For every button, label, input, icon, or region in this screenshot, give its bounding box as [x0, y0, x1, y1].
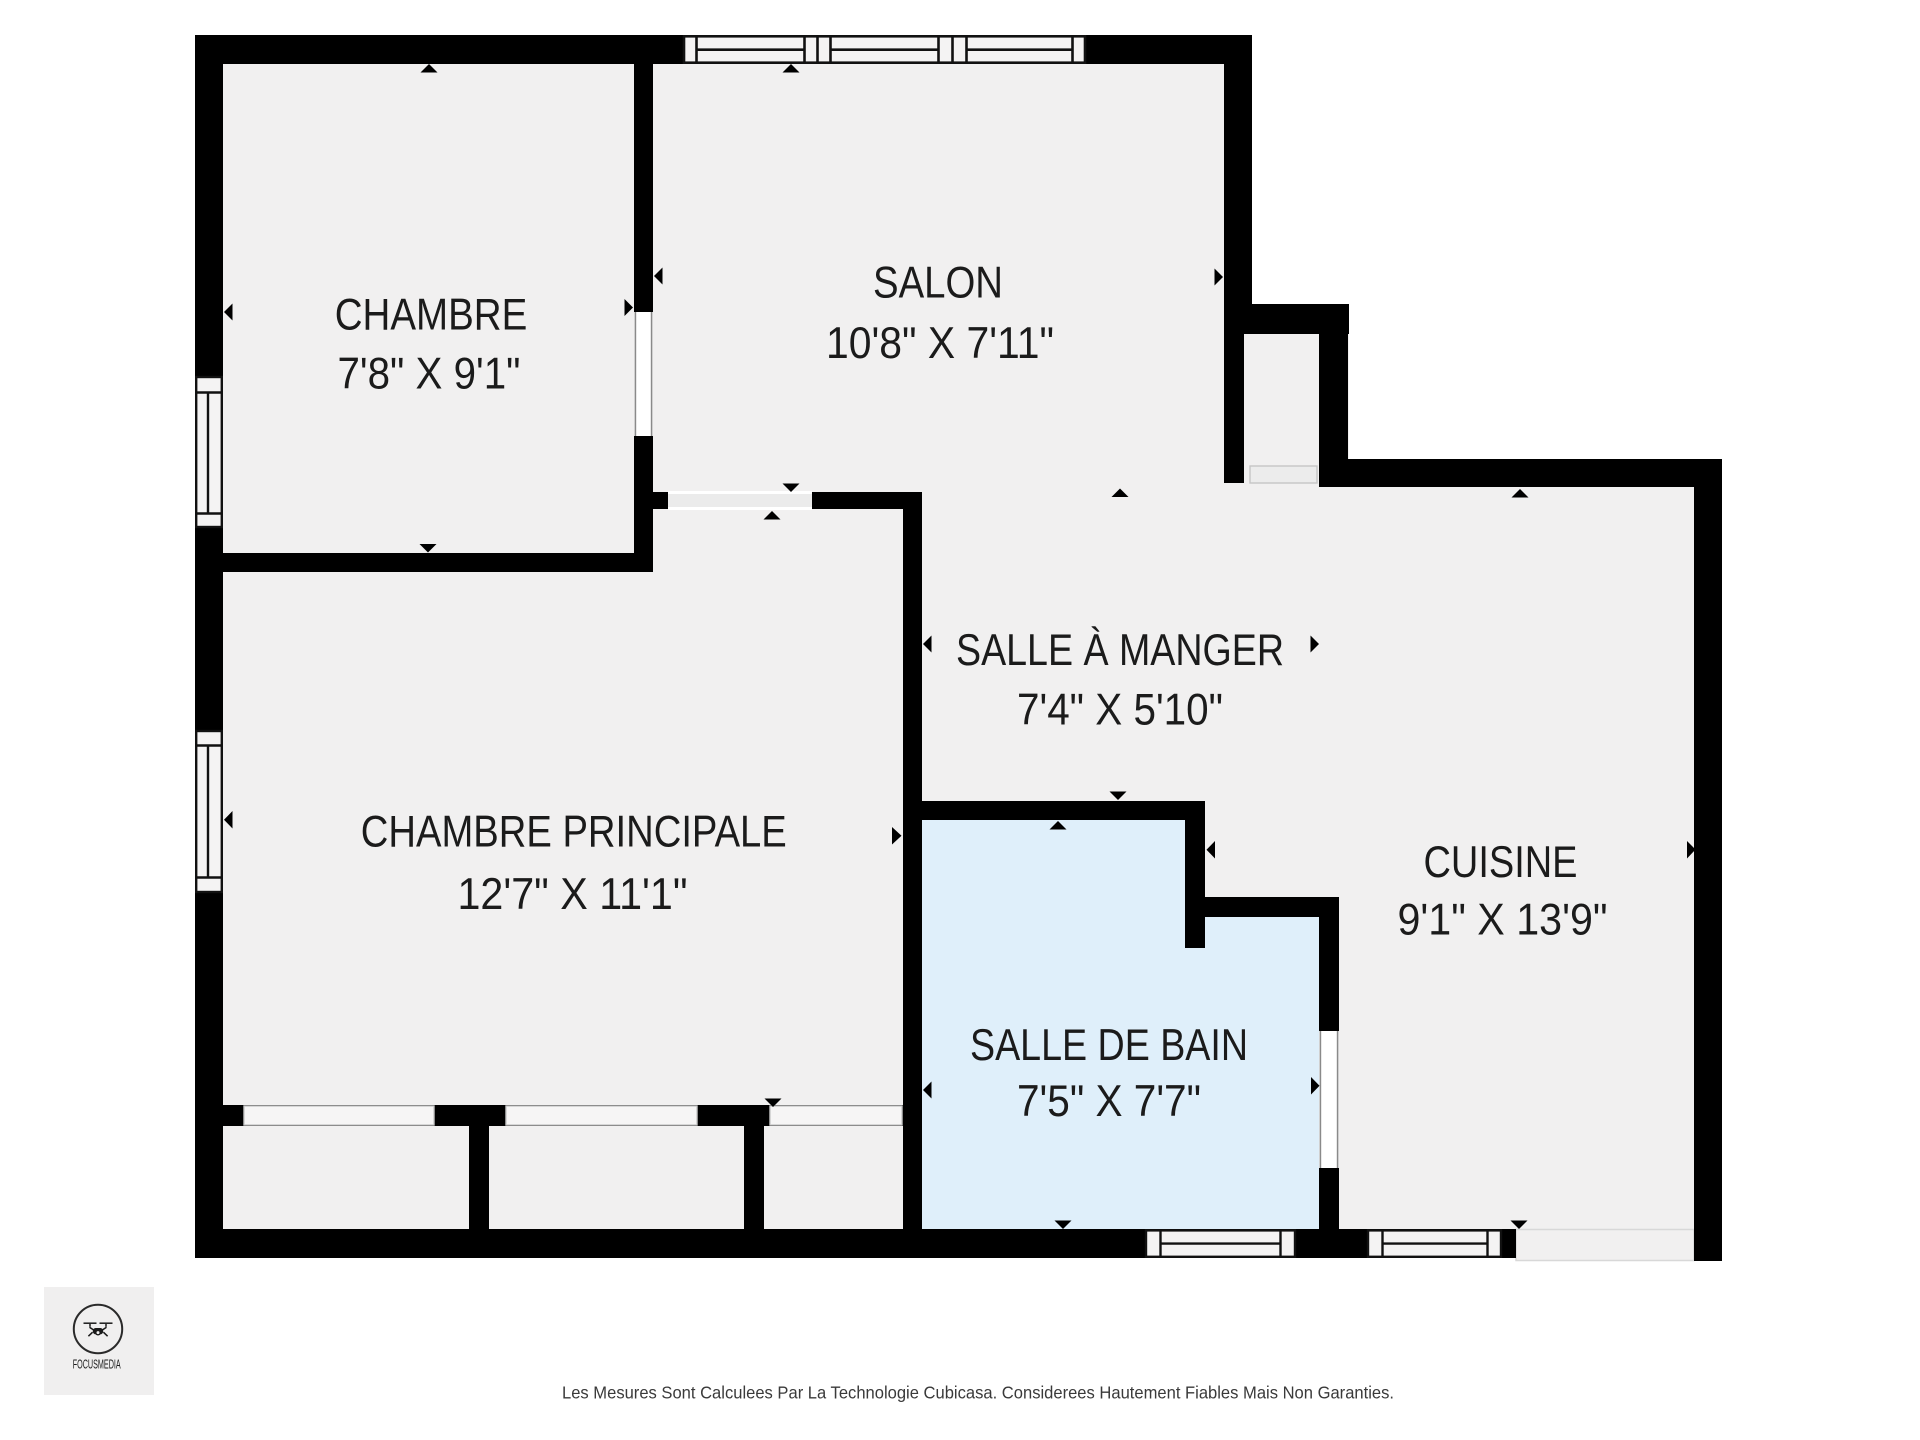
svg-text:Les Mesures Sont Calculees Par: Les Mesures Sont Calculees Par La Techno…	[562, 1383, 1394, 1403]
svg-text:FOCUSMEDIA: FOCUSMEDIA	[73, 1358, 121, 1372]
svg-text:9'1" X 13'9": 9'1" X 13'9"	[1398, 896, 1608, 945]
svg-text:CUISINE: CUISINE	[1424, 838, 1578, 887]
svg-text:10'8" X 7'11": 10'8" X 7'11"	[826, 319, 1054, 368]
svg-text:12'7" X 11'1": 12'7" X 11'1"	[458, 870, 688, 919]
svg-text:7'4" X 5'10": 7'4" X 5'10"	[1017, 686, 1223, 735]
svg-text:7'8" X 9'1": 7'8" X 9'1"	[338, 350, 521, 399]
svg-text:SALLE À MANGER: SALLE À MANGER	[956, 626, 1284, 675]
svg-text:CHAMBRE: CHAMBRE	[335, 290, 528, 339]
svg-text:SALON: SALON	[873, 259, 1003, 308]
svg-text:CHAMBRE PRINCIPALE: CHAMBRE PRINCIPALE	[361, 808, 787, 857]
svg-text:7'5" X 7'7": 7'5" X 7'7"	[1017, 1077, 1201, 1126]
svg-text:SALLE DE BAIN: SALLE DE BAIN	[970, 1021, 1248, 1070]
